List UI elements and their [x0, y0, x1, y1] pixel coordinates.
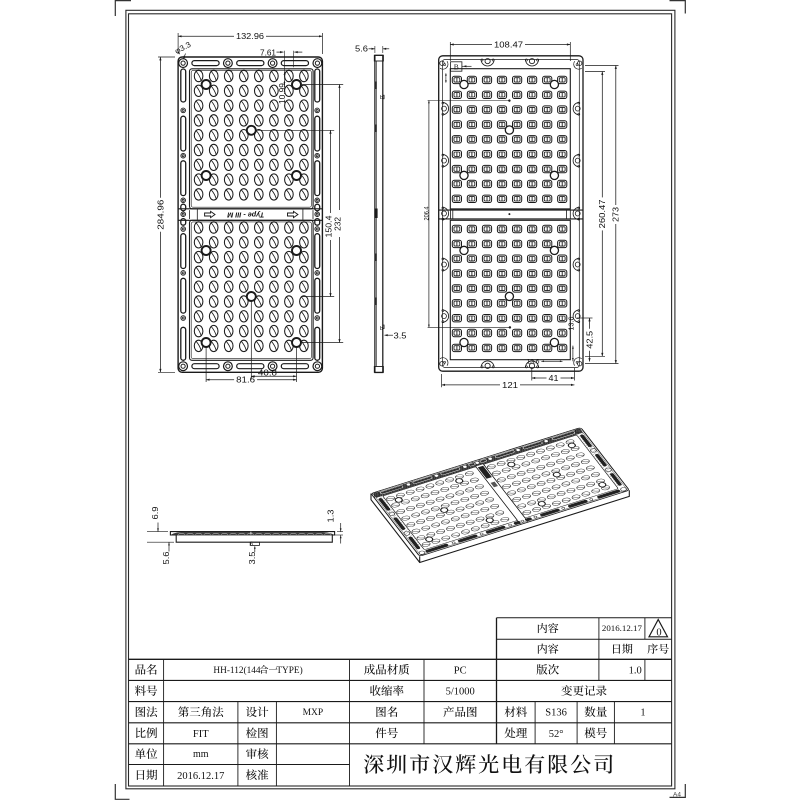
svg-text:5.6: 5.6	[161, 551, 171, 564]
svg-text:MXP: MXP	[303, 708, 324, 718]
svg-text:81.6: 81.6	[236, 375, 255, 385]
svg-text:132.96: 132.96	[236, 31, 264, 41]
svg-text:40.8: 40.8	[258, 368, 277, 378]
svg-text:A4: A4	[673, 792, 681, 799]
svg-text:232: 232	[334, 216, 343, 231]
svg-text:1: 1	[640, 708, 645, 719]
svg-text:10.99: 10.99	[278, 82, 287, 104]
svg-text:TYPE): TYPE)	[276, 665, 302, 676]
svg-text:3.5: 3.5	[394, 330, 407, 340]
svg-text:6: 6	[250, 542, 253, 548]
svg-text:HH-112(144: HH-112(144	[213, 665, 261, 676]
svg-text:7.61: 7.61	[260, 47, 276, 57]
svg-text:3.5: 3.5	[247, 551, 257, 564]
svg-text:13.6: 13.6	[569, 316, 576, 330]
svg-text:2016.12.17: 2016.12.17	[602, 624, 642, 633]
svg-text:S136: S136	[545, 708, 567, 719]
svg-text:108.47: 108.47	[494, 39, 523, 49]
svg-text:121: 121	[502, 380, 518, 390]
svg-text:FIT: FIT	[193, 729, 209, 740]
svg-text:6.9: 6.9	[150, 506, 160, 519]
svg-text:5/1000: 5/1000	[446, 687, 475, 698]
svg-text:206.4: 206.4	[423, 206, 430, 221]
svg-text:52°: 52°	[549, 729, 564, 740]
svg-text:41: 41	[549, 373, 559, 383]
svg-text:150.4: 150.4	[325, 215, 334, 238]
svg-text:PC: PC	[454, 665, 467, 676]
svg-text:mm: mm	[193, 749, 209, 760]
svg-text:b: b	[380, 326, 383, 332]
svg-text:42.5: 42.5	[584, 331, 594, 349]
svg-text:0: 0	[656, 627, 661, 638]
svg-text:13.6: 13.6	[527, 359, 540, 366]
svg-text:2016.12.17: 2016.12.17	[177, 771, 224, 782]
svg-text:b: b	[380, 95, 383, 101]
svg-text:1.0: 1.0	[629, 665, 642, 676]
svg-text:273: 273	[611, 207, 621, 222]
svg-text:260.47: 260.47	[597, 199, 607, 228]
svg-text:284.96: 284.96	[155, 200, 165, 230]
svg-text:B: B	[454, 63, 459, 72]
svg-text:Type - III M: Type - III M	[227, 210, 264, 217]
svg-text:5.6: 5.6	[355, 44, 368, 54]
svg-text:1.3: 1.3	[325, 509, 335, 522]
